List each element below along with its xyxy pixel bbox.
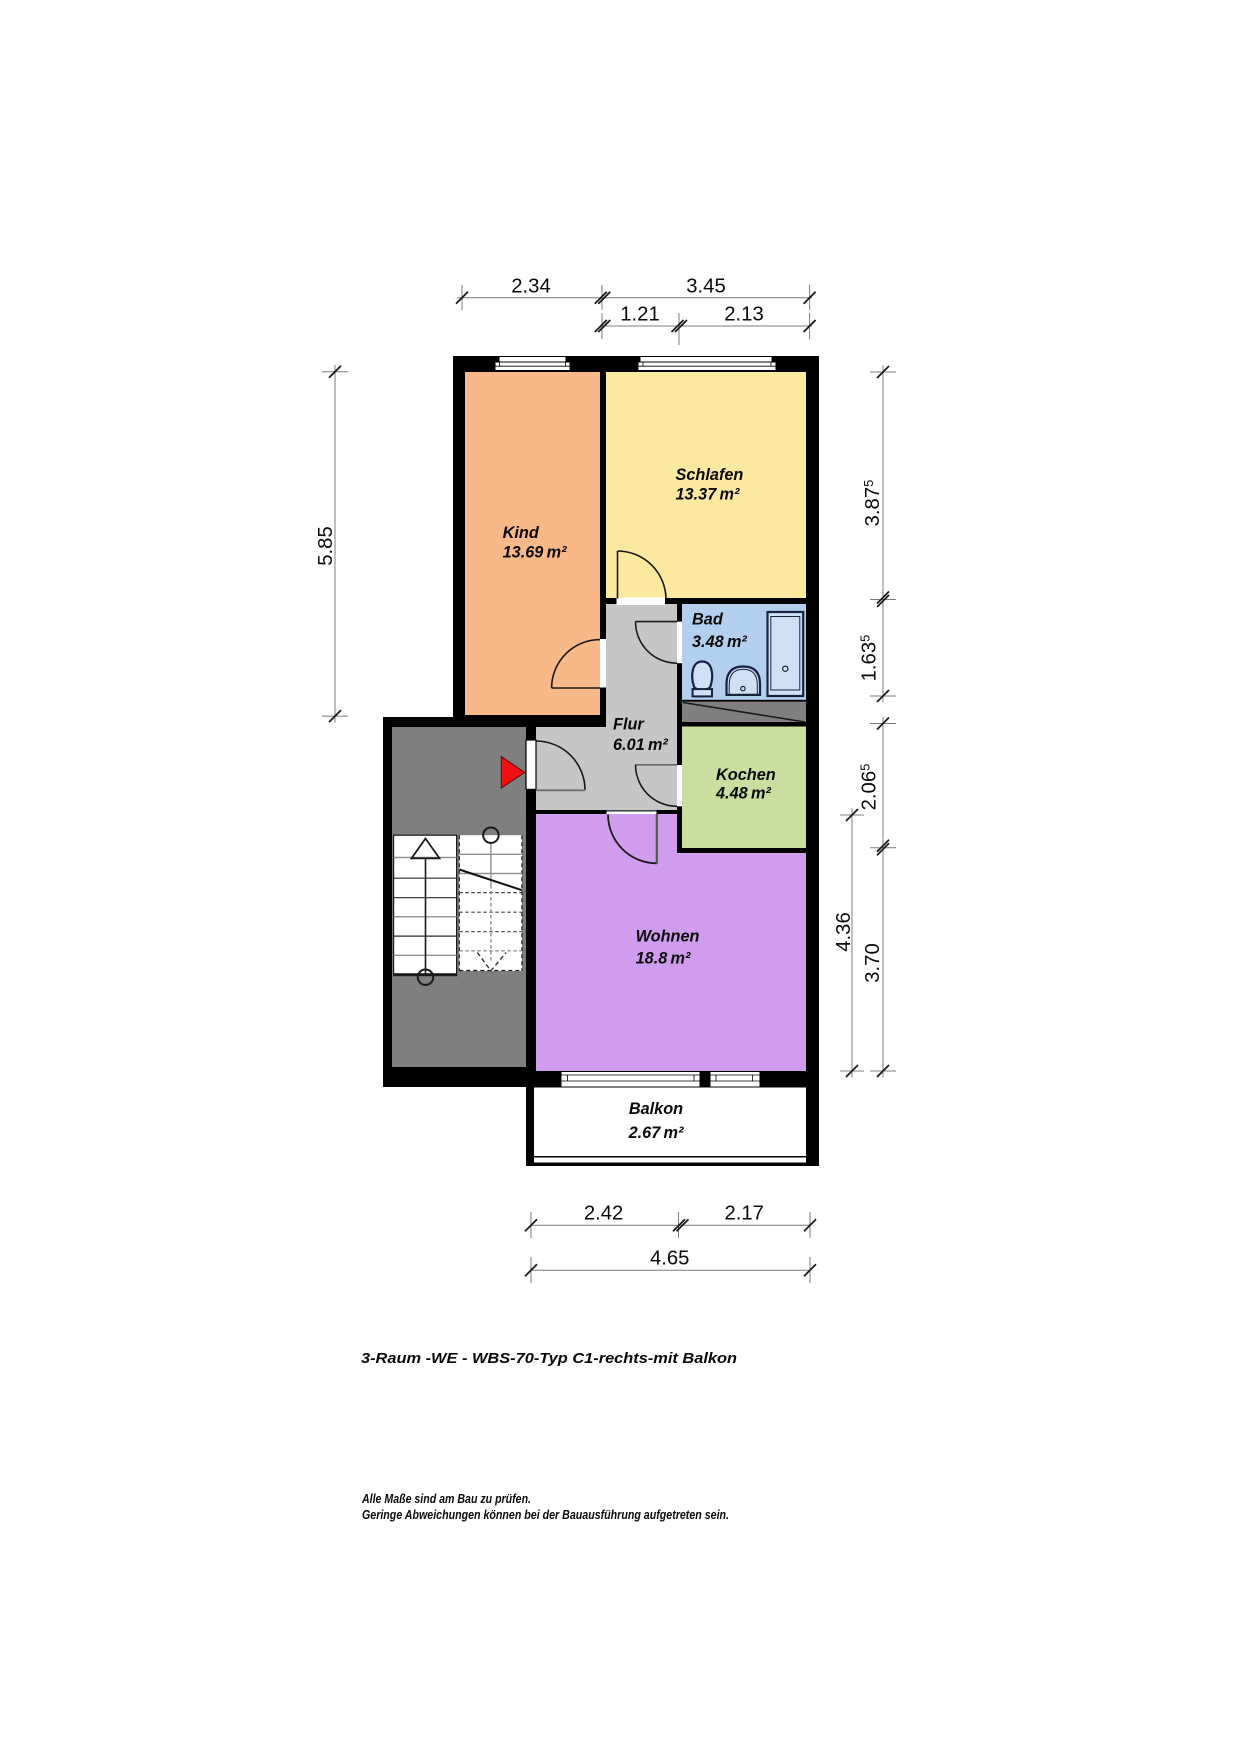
svg-text:Wohnen: Wohnen bbox=[636, 928, 700, 946]
svg-text:5.85: 5.85 bbox=[315, 526, 337, 565]
svg-text:6.01 m²: 6.01 m² bbox=[613, 736, 668, 754]
svg-text:Alle Maße sind am Bau zu prüfe: Alle Maße sind am Bau zu prüfen. bbox=[361, 1491, 531, 1506]
svg-text:2.42: 2.42 bbox=[584, 1203, 623, 1225]
svg-text:2.67 m²: 2.67 m² bbox=[628, 1124, 684, 1142]
svg-text:3.45: 3.45 bbox=[686, 276, 725, 298]
svg-text:Flur: Flur bbox=[613, 715, 645, 733]
svg-text:4.48 m²: 4.48 m² bbox=[715, 784, 771, 802]
svg-text:Kochen: Kochen bbox=[716, 766, 776, 784]
svg-text:1.21: 1.21 bbox=[620, 304, 659, 326]
svg-text:18.8 m²: 18.8 m² bbox=[636, 949, 691, 967]
svg-text:3.48 m²: 3.48 m² bbox=[692, 633, 747, 651]
svg-text:Schlafen: Schlafen bbox=[676, 466, 744, 484]
svg-text:4.65: 4.65 bbox=[650, 1248, 689, 1270]
svg-text:4.36: 4.36 bbox=[833, 912, 855, 951]
svg-text:3-Raum -WE - WBS-70-Typ C1-rec: 3-Raum -WE - WBS-70-Typ C1-rechts-mit Ba… bbox=[361, 1351, 737, 1367]
svg-text:Bad: Bad bbox=[692, 611, 724, 629]
svg-text:13.69 m²: 13.69 m² bbox=[503, 543, 567, 561]
svg-text:Geringe Abweichungen können be: Geringe Abweichungen können bei der Baua… bbox=[362, 1507, 729, 1522]
svg-text:3.70: 3.70 bbox=[862, 943, 884, 982]
svg-text:Kind: Kind bbox=[503, 524, 540, 542]
svg-text:13.37 m²: 13.37 m² bbox=[676, 485, 740, 503]
svg-text:2.34: 2.34 bbox=[511, 276, 550, 298]
svg-text:2.13: 2.13 bbox=[724, 304, 763, 326]
svg-text:2.17: 2.17 bbox=[724, 1203, 763, 1225]
svg-text:Balkon: Balkon bbox=[629, 1100, 683, 1118]
